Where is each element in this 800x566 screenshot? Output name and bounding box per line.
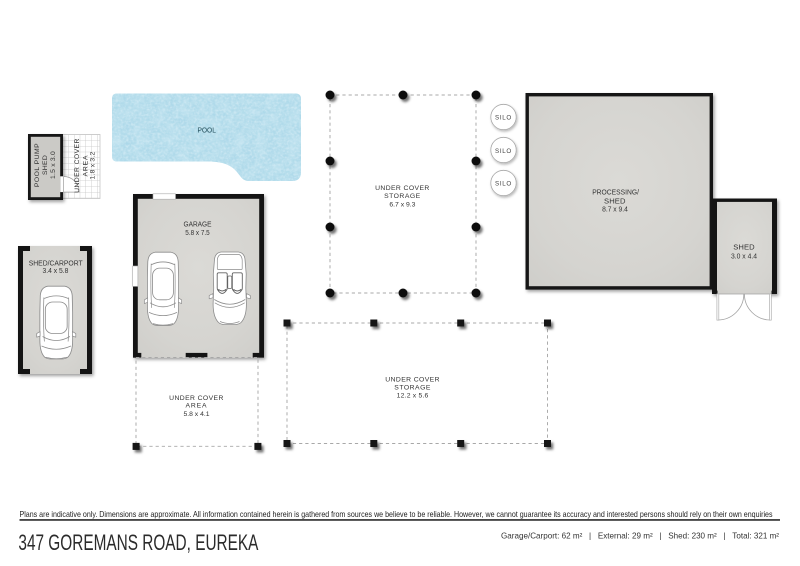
- svg-text:3.4 x 5.8: 3.4 x 5.8: [42, 266, 68, 275]
- svg-text:5.8 x 4.1: 5.8 x 4.1: [183, 411, 209, 418]
- svg-text:UNDER COVER: UNDER COVER: [74, 138, 81, 193]
- svg-text:Garage/Carport: 62 m² | Ex: Garage/Carport: 62 m² | External: 29 m² …: [501, 532, 779, 541]
- svg-text:6.7 x 9.3: 6.7 x 9.3: [389, 202, 415, 209]
- svg-text:POOL: POOL: [197, 125, 216, 134]
- svg-text:STORAGE: STORAGE: [384, 193, 421, 200]
- svg-text:SILO: SILO: [495, 181, 512, 188]
- svg-text:POOL PUMP: POOL PUMP: [34, 143, 41, 187]
- svg-text:UNDER COVER: UNDER COVER: [169, 395, 224, 402]
- svg-text:12.2 x 5.6: 12.2 x 5.6: [397, 393, 429, 400]
- svg-text:UNDER COVER: UNDER COVER: [385, 376, 440, 383]
- svg-text:SHED: SHED: [42, 155, 49, 175]
- svg-text:8.7 x 9.4: 8.7 x 9.4: [602, 204, 628, 213]
- svg-text:AREA: AREA: [186, 403, 208, 410]
- svg-text:5.8 x 7.5: 5.8 x 7.5: [185, 228, 209, 237]
- svg-text:UNDER COVER: UNDER COVER: [375, 185, 430, 192]
- svg-text:SILO: SILO: [495, 115, 512, 122]
- svg-text:AREA: AREA: [83, 155, 90, 177]
- svg-text:SHED: SHED: [733, 242, 755, 251]
- svg-text:PROCESSING/: PROCESSING/: [592, 187, 640, 196]
- svg-text:3.0 x 4.4: 3.0 x 4.4: [731, 252, 757, 261]
- svg-text:347 GOREMANS ROAD, EUREKA: 347 GOREMANS ROAD, EUREKA: [18, 530, 258, 555]
- svg-text:1.5 x 3.0: 1.5 x 3.0: [50, 151, 57, 179]
- svg-text:SILO: SILO: [495, 148, 512, 155]
- svg-text:Plans are indicative only. Dim: Plans are indicative only. Dimensions ar…: [20, 509, 773, 519]
- svg-text:STORAGE: STORAGE: [394, 385, 431, 392]
- svg-text:1.8 x 3.2: 1.8 x 3.2: [90, 152, 97, 180]
